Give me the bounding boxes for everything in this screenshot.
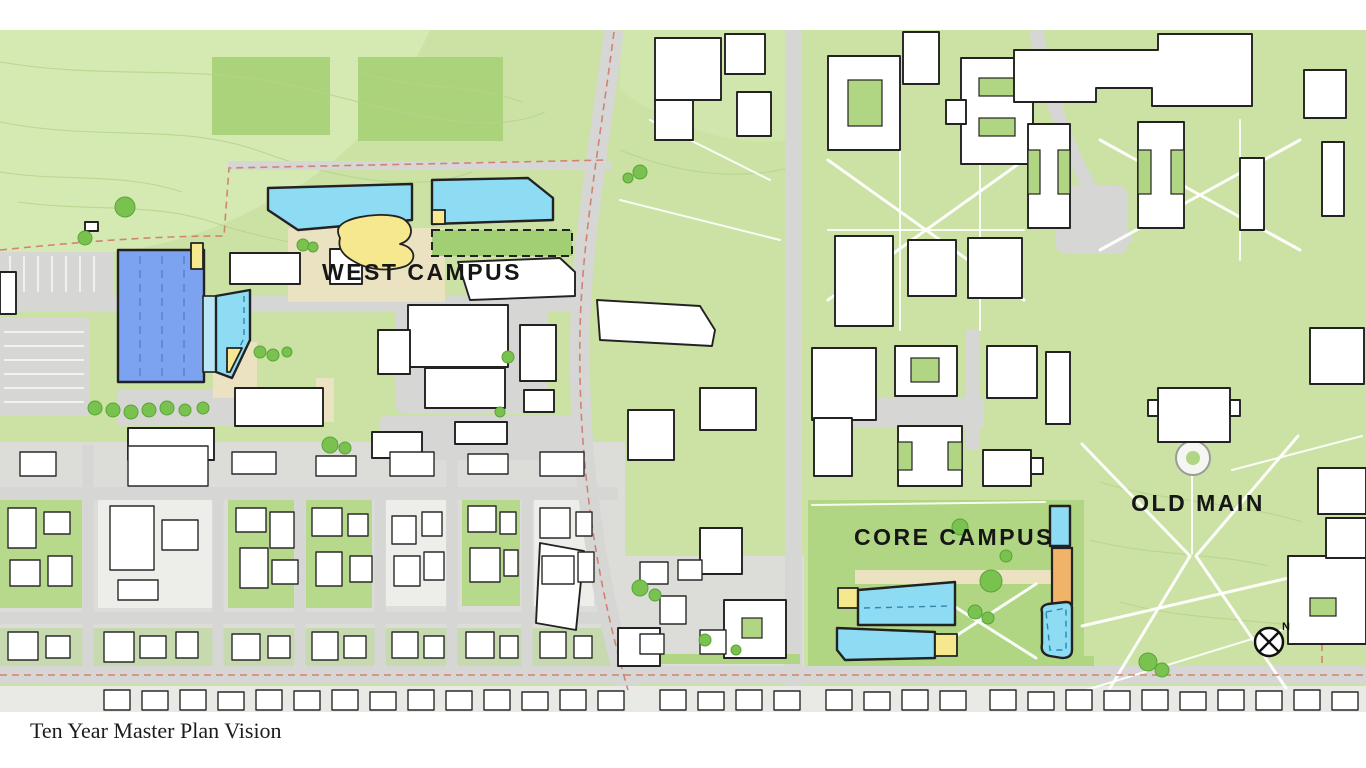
compass-north-label: N (1282, 621, 1290, 633)
proposed-building-cyan-core-a (858, 582, 955, 625)
plan-caption: Ten Year Master Plan Vision (30, 718, 282, 744)
top-margin (0, 0, 1366, 30)
core-campus-label: CORE CAMPUS (854, 524, 1054, 550)
east-street (785, 30, 802, 690)
master-plan-page: WEST CAMPUS CORE CAMPUS OLD MAIN N Ten Y… (0, 0, 1366, 768)
old-main-label: OLD MAIN (1131, 490, 1265, 516)
west-campus-label: WEST CAMPUS (322, 259, 522, 285)
proposed-addition-yellow-1 (191, 243, 203, 269)
proposed-addition-yellow-4 (838, 588, 858, 608)
proposed-building-cyan-strip (203, 296, 216, 372)
proposed-building-cyan-north-b (432, 178, 553, 224)
proposed-building-cyan-core-b (837, 628, 935, 660)
parking-lot-west (0, 252, 114, 296)
proposed-addition-yellow-5 (935, 634, 957, 656)
northwest-drive (228, 161, 612, 170)
proposed-addition-yellow-3 (432, 210, 445, 224)
campus-map: WEST CAMPUS CORE CAMPUS OLD MAIN N (0, 0, 1366, 768)
future-development-site (432, 230, 572, 256)
proposed-building-orange (1052, 548, 1072, 604)
